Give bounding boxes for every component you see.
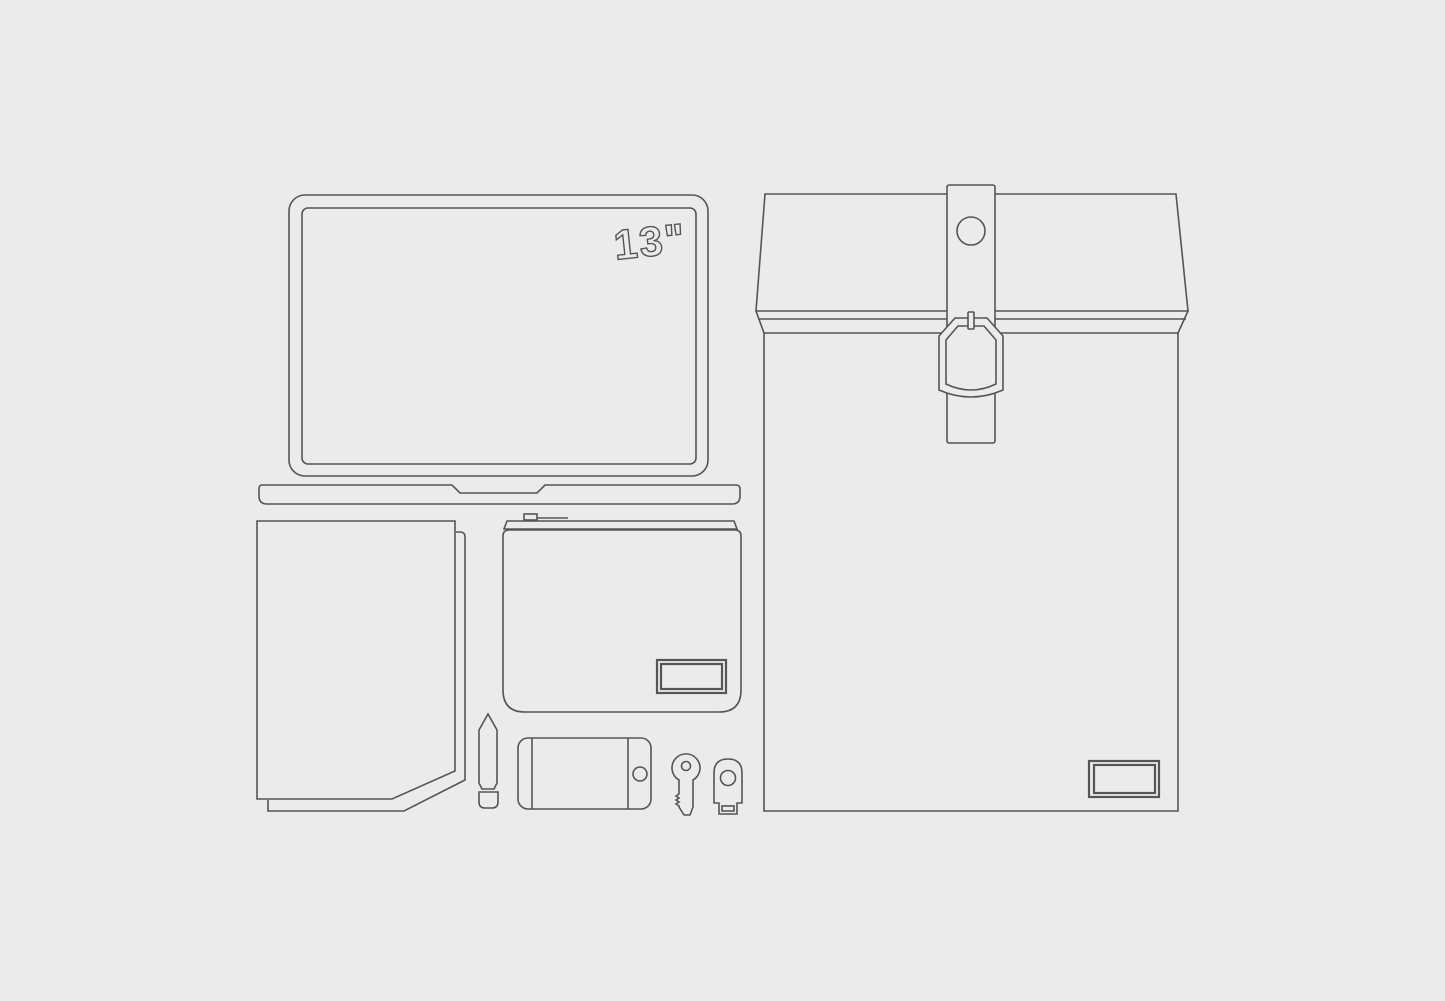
usb-key-illustration (714, 759, 742, 814)
pouch-zipper-band (504, 521, 737, 529)
pouch-zipper-pull (524, 514, 537, 520)
laptop-illustration: 13" (259, 195, 740, 504)
laptop-base (259, 485, 740, 504)
phone-body (518, 738, 651, 809)
smartphone-illustration (518, 738, 651, 809)
pencil-eraser-cap (479, 792, 498, 808)
bag-buckle-prong (968, 312, 974, 329)
sleeve-bag-illustration (756, 185, 1188, 811)
illustration-canvas: 13" (0, 0, 1445, 1001)
laptop-size-label: 13" (612, 214, 689, 268)
pouch-body (503, 530, 741, 712)
flatlay-illustration: 13" (0, 0, 1445, 1001)
folder-illustration (257, 521, 465, 811)
zip-pouch-illustration (503, 514, 741, 712)
key-illustration (672, 754, 700, 815)
folder-front-cover (257, 521, 455, 799)
pencil-body (479, 714, 497, 789)
pencil-illustration (479, 714, 498, 808)
key-outline (672, 754, 700, 815)
